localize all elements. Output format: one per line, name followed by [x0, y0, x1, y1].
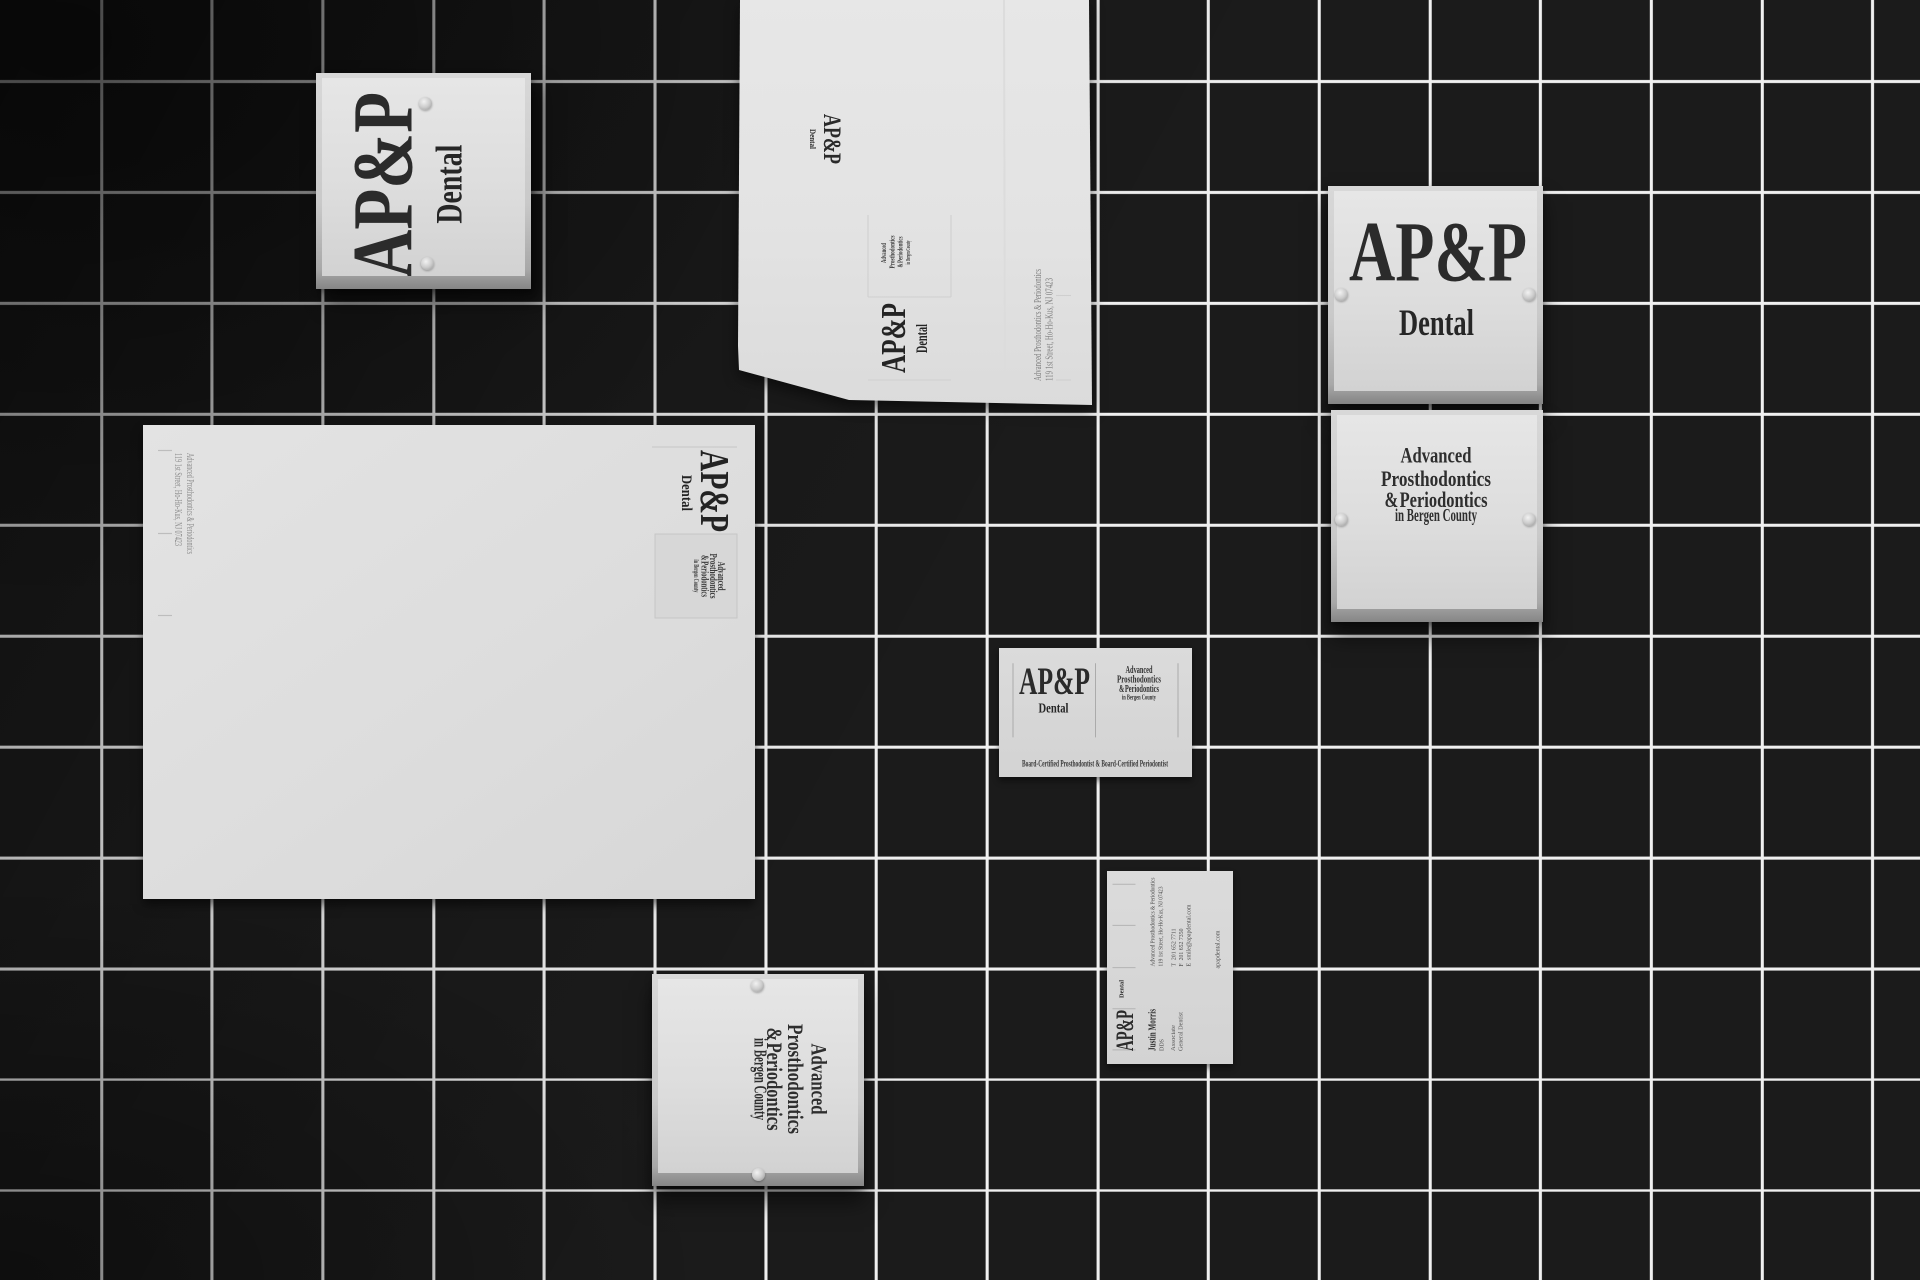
svg-text:Dental: Dental — [1399, 302, 1474, 343]
svg-text:Dental: Dental — [1039, 702, 1069, 717]
svg-text:AP&P: AP&P — [337, 92, 431, 276]
svg-text:General Dentist: General Dentist — [1177, 1011, 1184, 1050]
svg-text:119 1st Street, Ho-Ho-Kus, NJ: 119 1st Street, Ho-Ho-Kus, NJ 07423 — [1157, 886, 1164, 966]
svg-text:apapdental.com: apapdental.com — [1214, 930, 1221, 968]
svg-text:Prosthodontics: Prosthodontics — [888, 235, 896, 268]
svg-text:AP&P: AP&P — [874, 303, 913, 373]
svg-text:DDS: DDS — [1159, 1039, 1165, 1051]
svg-text:Advanced Prosthodontics & Peri: Advanced Prosthodontics & Periodontics — [1033, 269, 1044, 381]
svg-text:Associate: Associate — [1170, 1024, 1177, 1050]
svg-text:Justin Morris: Justin Morris — [1146, 1008, 1158, 1050]
svg-text:E smile@apapdental.com: E smile@apapdental.com — [1185, 904, 1192, 966]
svg-text:AP&P: AP&P — [692, 450, 738, 532]
svg-text:Dental: Dental — [1118, 979, 1125, 997]
svg-text:in Bergen County: in Bergen County — [1395, 505, 1477, 525]
svg-text:AP&P: AP&P — [1112, 1010, 1139, 1051]
svg-text:Dental: Dental — [678, 475, 694, 511]
svg-text:Dental: Dental — [914, 324, 931, 353]
svg-text:in Bergen County: in Bergen County — [692, 560, 700, 593]
svg-text:& Periodontics: & Periodontics — [897, 236, 905, 267]
svg-text:Advanced: Advanced — [807, 1044, 832, 1115]
svg-text:F 201 652 7350: F 201 652 7350 — [1178, 928, 1185, 966]
svg-text:AP&P: AP&P — [1349, 206, 1527, 300]
svg-text:Advanced: Advanced — [1401, 443, 1472, 468]
svg-text:AP&P: AP&P — [1019, 660, 1090, 703]
svg-text:in Bergen County: in Bergen County — [751, 1038, 771, 1120]
svg-text:T 201 652 7711: T 201 652 7711 — [1170, 928, 1177, 966]
svg-text:Advanced Prosthodontics & Peri: Advanced Prosthodontics & Periodontics — [1149, 877, 1156, 966]
svg-text:Board-Certified Prosthodontist: Board-Certified Prosthodontist & Board-C… — [1022, 759, 1168, 769]
svg-text:Dental: Dental — [808, 129, 818, 150]
svg-text:119 1st Street, Ho-Ho-Kus, NJ: 119 1st Street, Ho-Ho-Kus, NJ 07423 — [1045, 278, 1056, 381]
svg-text:Advanced: Advanced — [880, 243, 888, 263]
svg-text:Dental: Dental — [428, 145, 469, 224]
svg-text:in Bergen County: in Bergen County — [906, 241, 912, 265]
svg-text:119 1st Street, Ho-Ho-Kus, NJ: 119 1st Street, Ho-Ho-Kus, NJ 07423 — [172, 453, 183, 546]
svg-text:Advanced Prosthodontics & Peri: Advanced Prosthodontics & Periodontics — [184, 453, 195, 554]
svg-text:in Bergen County: in Bergen County — [1122, 694, 1156, 702]
svg-text:AP&P: AP&P — [818, 114, 845, 164]
